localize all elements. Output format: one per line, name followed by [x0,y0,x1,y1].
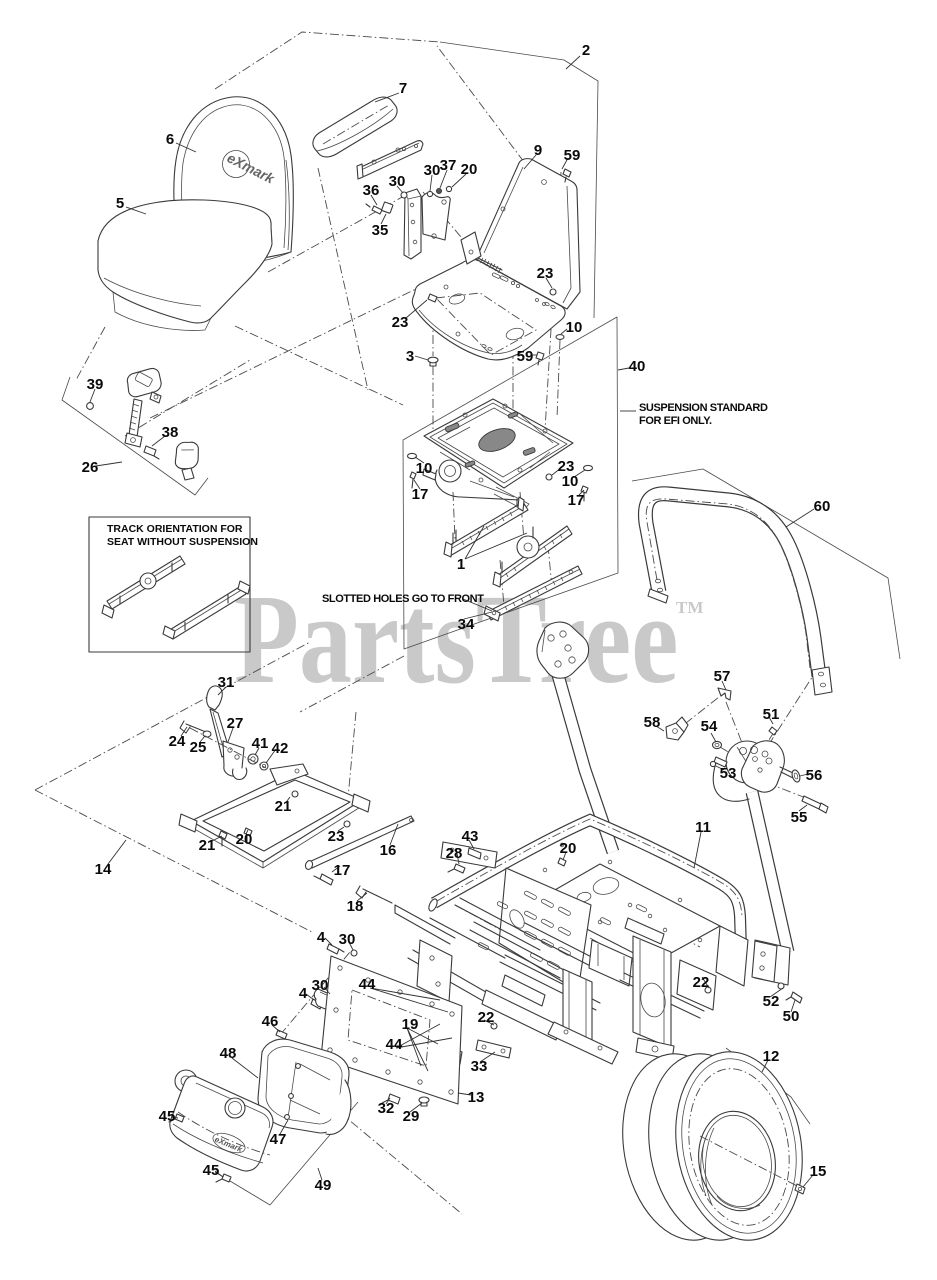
svg-text:40: 40 [629,358,646,375]
svg-text:39: 39 [87,376,104,393]
svg-text:20: 20 [236,831,253,848]
svg-text:30: 30 [424,162,441,179]
svg-text:15: 15 [810,1163,827,1180]
svg-text:33: 33 [471,1058,488,1075]
svg-text:36: 36 [363,182,380,199]
svg-text:5: 5 [116,195,124,212]
svg-text:SUSPENSION STANDARD: SUSPENSION STANDARD [639,402,768,414]
svg-text:44: 44 [386,1036,403,1053]
svg-text:2: 2 [582,42,590,59]
svg-text:4: 4 [317,929,326,946]
svg-text:17: 17 [568,492,585,509]
svg-text:10: 10 [566,319,583,336]
svg-text:43: 43 [462,828,479,845]
svg-text:SLOTTED HOLES GO TO FRONT: SLOTTED HOLES GO TO FRONT [322,593,484,605]
svg-text:30: 30 [339,931,356,948]
svg-text:FOR EFI ONLY.: FOR EFI ONLY. [639,415,712,427]
svg-text:44: 44 [359,976,376,993]
svg-text:23: 23 [392,314,409,331]
svg-text:25: 25 [190,739,207,756]
svg-text:1: 1 [457,556,465,573]
svg-text:55: 55 [791,809,808,826]
svg-text:59: 59 [517,348,534,365]
svg-text:23: 23 [328,828,345,845]
svg-text:31: 31 [218,674,235,691]
svg-text:21: 21 [275,798,292,815]
svg-text:29: 29 [403,1108,420,1125]
svg-text:22: 22 [478,1009,495,1026]
svg-text:26: 26 [82,459,99,476]
svg-text:23: 23 [537,265,554,282]
svg-text:59: 59 [564,147,581,164]
svg-text:57: 57 [714,668,731,685]
svg-text:20: 20 [560,840,577,857]
svg-text:24: 24 [169,733,186,750]
svg-text:21: 21 [199,837,216,854]
svg-text:37: 37 [440,157,457,174]
svg-text:18: 18 [347,898,364,915]
svg-text:27: 27 [227,715,244,732]
svg-text:32: 32 [378,1100,395,1117]
svg-text:SEAT WITHOUT SUSPENSION: SEAT WITHOUT SUSPENSION [107,536,258,548]
svg-text:19: 19 [402,1016,419,1033]
svg-text:60: 60 [814,498,831,515]
svg-text:53: 53 [720,765,737,782]
svg-text:4: 4 [299,985,308,1002]
svg-text:10: 10 [562,473,579,490]
svg-text:35: 35 [372,222,389,239]
svg-text:12: 12 [763,1048,780,1065]
svg-text:22: 22 [693,974,710,991]
svg-text:38: 38 [162,424,179,441]
svg-text:58: 58 [644,714,661,731]
svg-text:TM: TM [676,598,703,617]
svg-text:46: 46 [262,1013,279,1030]
svg-text:17: 17 [334,862,351,879]
svg-text:PartsTree: PartsTree [234,569,678,710]
svg-text:TRACK ORIENTATION FOR: TRACK ORIENTATION FOR [107,523,243,535]
svg-text:49: 49 [315,1177,332,1194]
svg-text:6: 6 [166,131,174,148]
svg-text:16: 16 [380,842,397,859]
svg-text:50: 50 [783,1008,800,1025]
svg-text:51: 51 [763,706,780,723]
svg-text:7: 7 [399,80,407,97]
svg-text:45: 45 [203,1162,220,1179]
svg-text:30: 30 [312,977,329,994]
svg-text:17: 17 [412,486,429,503]
svg-text:14: 14 [95,861,112,878]
svg-text:54: 54 [701,718,718,735]
svg-text:9: 9 [534,142,542,159]
svg-text:47: 47 [270,1131,287,1148]
svg-text:28: 28 [446,845,463,862]
svg-text:34: 34 [458,616,475,633]
svg-text:56: 56 [806,767,823,784]
svg-text:48: 48 [220,1045,237,1062]
svg-text:11: 11 [695,819,711,836]
svg-text:42: 42 [272,740,289,757]
svg-text:41: 41 [252,735,269,752]
svg-text:30: 30 [389,173,406,190]
svg-text:20: 20 [461,161,478,178]
svg-text:45: 45 [159,1108,176,1125]
svg-text:3: 3 [406,348,414,365]
svg-text:52: 52 [763,993,780,1010]
svg-text:13: 13 [468,1089,485,1106]
svg-text:10: 10 [416,460,433,477]
